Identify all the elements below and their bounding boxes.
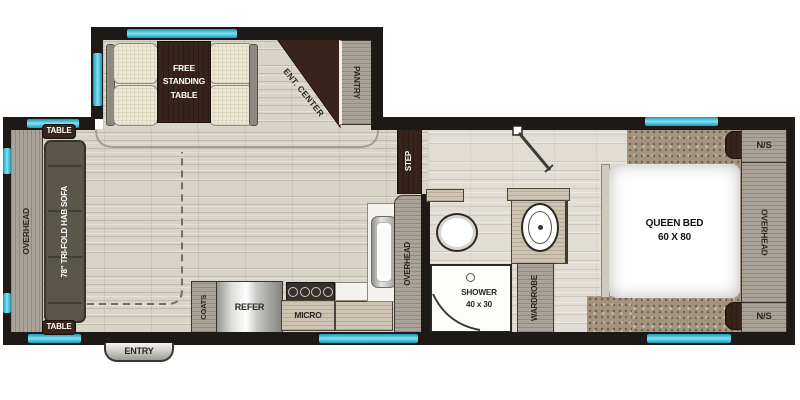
shower-pan-curve <box>433 294 480 330</box>
bedroom-door <box>519 133 550 170</box>
door-overlay <box>0 0 800 400</box>
floorplan-canvas: OVERHEAD 78" TRI-FOLD HAB SOFA FREE STAN… <box>0 0 800 400</box>
